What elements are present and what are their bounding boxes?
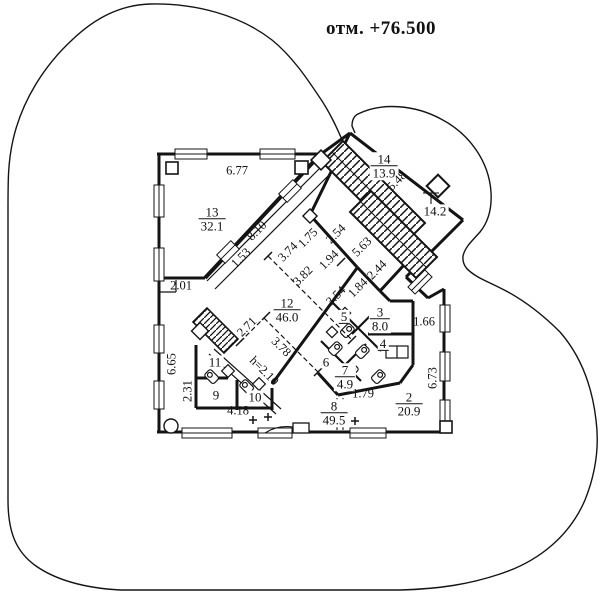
floorplan-drawing: отм. +76.500 1332.11246.01413.938.074.98… <box>0 0 604 599</box>
dashed-dimension-lines <box>236 252 359 430</box>
elevation-title: отм. +76.500 <box>326 18 436 40</box>
windows <box>154 149 450 438</box>
floorplan-linework <box>0 0 604 599</box>
gallery-band <box>159 151 345 414</box>
sink-counter <box>386 346 408 358</box>
site-outline-curve <box>8 4 597 590</box>
columns-and-doors <box>164 150 452 433</box>
